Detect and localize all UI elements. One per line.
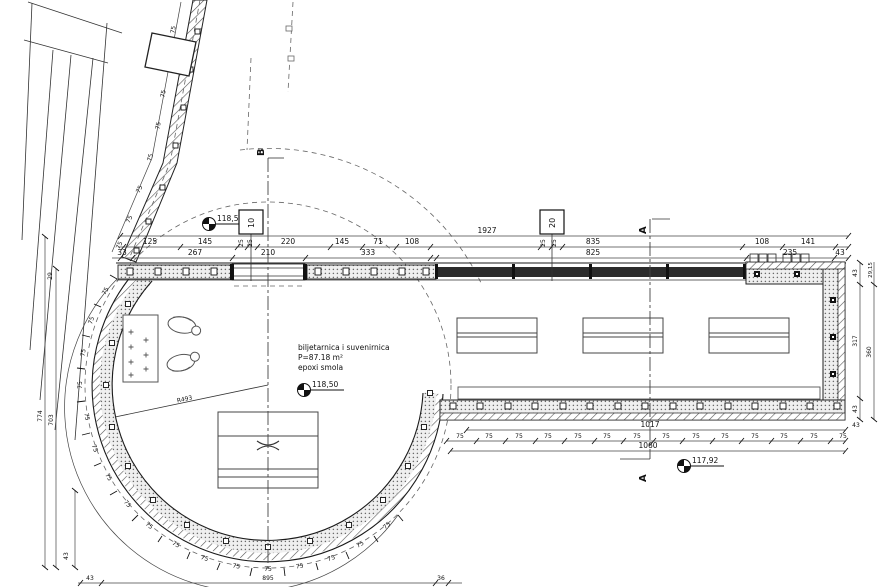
dim-label: 75 — [692, 433, 700, 440]
top-dimensions: 1927 125 145 25 25 220 145 71 108 25 25 … — [112, 226, 851, 261]
level-marker: 117,92 — [678, 456, 725, 473]
dim-label: 75 — [87, 316, 96, 326]
person-figure — [167, 315, 203, 337]
dim-label: 220 — [281, 237, 296, 246]
dim-label: 145 — [198, 237, 213, 246]
dim-label: 235 — [783, 248, 798, 257]
room-area: P=87.18 m² — [298, 353, 343, 362]
level-marker: 118,50 — [298, 380, 345, 397]
room-annotation: biljetarnica i suvenirnica P=87.18 m² ep… — [298, 343, 390, 372]
grid-label: 10 — [247, 218, 256, 228]
dim-label: 75 — [515, 433, 523, 440]
dim-label: 75 — [146, 153, 155, 162]
dim-label: 43 — [852, 422, 860, 429]
dim-label: 75 — [169, 25, 177, 34]
bottom-chord-dimensions: 43 895 36 — [78, 575, 462, 586]
radius-label: R493 — [176, 394, 193, 404]
dim-label: 75 — [485, 433, 493, 440]
level-label: 117,92 — [692, 456, 718, 465]
section-label-a: A — [638, 226, 649, 234]
dim-label: 43 — [86, 575, 94, 582]
dim-label: 43 — [852, 405, 859, 413]
display-table — [583, 318, 663, 353]
dim-label: 75 — [82, 412, 90, 421]
dim-label: 71 — [373, 237, 383, 246]
room-name: biljetarnica i suvenirnica — [298, 343, 390, 352]
dim-label: 29 — [47, 272, 54, 280]
dim-label: 43 — [835, 248, 845, 257]
south-wall-posts — [450, 403, 840, 409]
person-figure — [166, 351, 202, 374]
dim-label: 267 — [188, 248, 203, 257]
grid-label: 20 — [548, 218, 557, 228]
dim-label: 75 — [456, 433, 464, 440]
dim-label: 75 — [780, 433, 788, 440]
dim-label: 75 — [355, 540, 365, 550]
dim-label: 825 — [586, 248, 601, 257]
dim-label: 75 — [79, 348, 87, 357]
dim-label: 75 — [544, 433, 552, 440]
dim-label: 75 — [135, 184, 145, 194]
entrance-opening — [230, 264, 307, 286]
dim-label: 25 — [238, 239, 245, 247]
right-dimensions: 43 317 43 360 29,15 — [852, 260, 877, 422]
display-table — [709, 318, 789, 353]
dim-label: 25 — [551, 239, 558, 247]
bottom-dimensions: 1017 75 75 75 75 75 75 75 75 75 75 75 75… — [444, 420, 860, 454]
room-floor: epoxi smola — [298, 363, 343, 372]
dim-label: 75 — [103, 472, 113, 482]
dim-label: 43 — [852, 269, 859, 277]
dim-label: 774 — [37, 410, 44, 422]
dim-label: 75 — [232, 562, 241, 570]
dim-label: 1927 — [477, 226, 496, 235]
dim-label: 75 — [77, 381, 84, 389]
dim-label: 33 — [117, 248, 127, 257]
floor-plan-page: 75 75 75 75 75 75 75 75 — [0, 0, 880, 587]
dim-label: 75 — [662, 433, 670, 440]
dim-label: 895 — [262, 575, 274, 582]
dim-label: 75 — [574, 433, 582, 440]
dim-label: 1017 — [640, 420, 659, 429]
display-table — [457, 318, 537, 353]
dim-label: 333 — [361, 248, 376, 257]
dim-label: 75 — [751, 433, 759, 440]
dim-label: 75 — [264, 566, 272, 573]
dim-label: 703 — [48, 414, 55, 426]
dim-label: 75 — [810, 433, 818, 440]
dim-label: 25 — [540, 239, 547, 247]
dim-label: 360 — [866, 346, 873, 358]
dim-label: 75 — [633, 433, 641, 440]
dim-label: 835 — [586, 237, 601, 246]
south-bench — [458, 387, 820, 399]
dim-label: 145 — [335, 237, 350, 246]
dim-label: 210 — [261, 248, 276, 257]
level-label: 118,50 — [312, 380, 338, 389]
dim-label: 25 — [247, 239, 254, 247]
south-wall — [440, 400, 845, 420]
dim-label: 75 — [122, 499, 132, 509]
north-facade-wall — [116, 263, 846, 286]
dim-label: 75 — [721, 433, 729, 440]
dim-label: 75 — [295, 562, 304, 570]
dim-label: 43 — [63, 552, 70, 560]
dim-label: 75 — [154, 121, 162, 130]
dim-label: 1060 — [638, 441, 657, 450]
dim-label: 36 — [437, 575, 445, 582]
dim-label: 75 — [603, 433, 611, 440]
dim-label: 75 — [171, 540, 181, 550]
section-label-b: B — [256, 148, 267, 156]
floor-plan-canvas: 75 75 75 75 75 75 75 75 — [0, 0, 880, 587]
section-label-a: A — [638, 474, 649, 482]
boundary-wall: 75 75 75 75 75 75 75 75 — [112, 0, 207, 262]
dim-label: 141 — [801, 237, 816, 246]
dim-label: 108 — [755, 237, 770, 246]
dim-label: 125 — [143, 237, 158, 246]
dim-label: 75 — [159, 89, 167, 98]
dim-label: 75 — [382, 521, 392, 531]
dim-label: 108 — [405, 237, 420, 246]
dim-label: 75 — [839, 433, 847, 440]
dim-label: 317 — [852, 335, 859, 347]
ticket-counter — [123, 315, 158, 382]
dim-label: 29,15 — [868, 262, 874, 278]
dim-label: 75 — [200, 554, 210, 563]
dim-label: 75 — [144, 521, 154, 531]
dim-label: 75 — [125, 214, 135, 224]
